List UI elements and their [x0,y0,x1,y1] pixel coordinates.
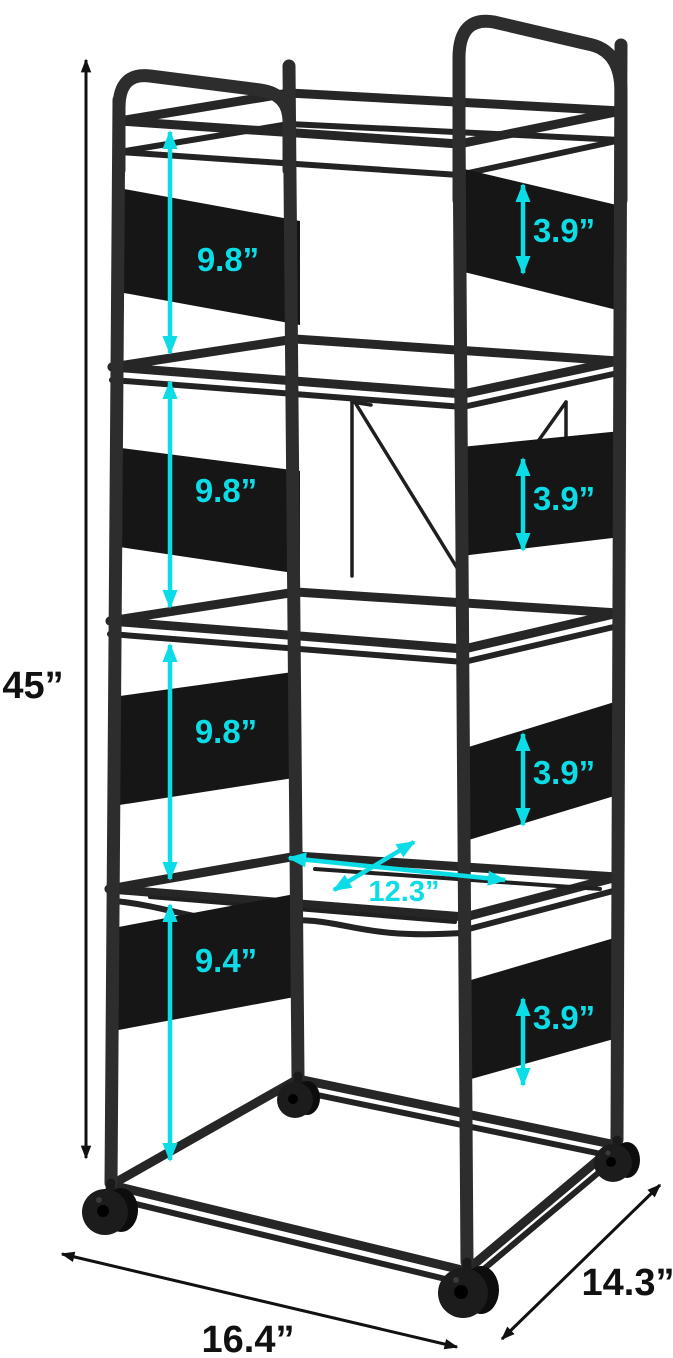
shelf-gap-label-3: 9.8” [195,713,257,750]
shelf-gap-label-4: 9.4” [195,942,257,979]
panel-height-label-1: 3.9” [533,212,595,249]
post-front-left [111,100,119,1183]
base-width-label: 16.4” [202,1319,295,1358]
shelf-gap-label-1: 9.8” [197,241,259,278]
shelf-2-frame [112,339,618,407]
base-depth-label: 14.3” [582,1262,673,1304]
shelf-1-frame [119,93,621,175]
post-front-right [459,130,467,1262]
panel-height-label-3: 3.9” [533,754,595,791]
post-rear-right [617,45,621,1140]
rolling-cart-diagram-svg: 45” 9.8” 9.8” 9.8” 9.4” 3.9” 3.9” 3.9” 3… [0,0,673,1358]
post-rear-left [289,66,298,1076]
panel-height-label-2: 3.9” [533,480,595,517]
product-dimension-diagram: 45” 9.8” 9.8” 9.8” 9.4” 3.9” 3.9” 3.9” 3… [0,0,673,1358]
overall-height-label: 45” [2,665,63,707]
inner-width-label: 12.3” [369,876,440,908]
left-panel-2 [113,447,300,574]
shelf-3-frame [110,592,618,662]
shelf-gap-label-2: 9.8” [195,472,257,509]
base-frame [111,1079,616,1284]
panel-height-label-4: 3.9” [533,999,595,1036]
